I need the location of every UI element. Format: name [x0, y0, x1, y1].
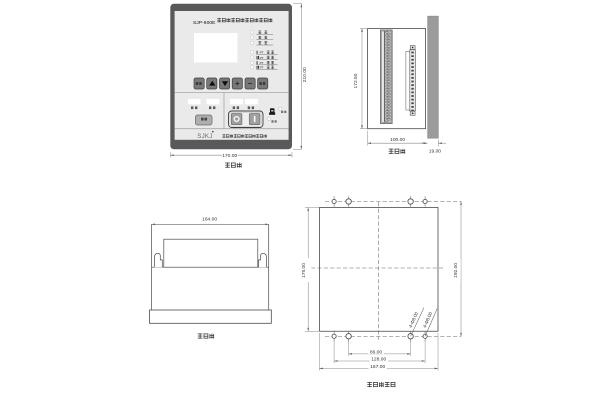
- svg-text:192.00: 192.00: [453, 263, 459, 278]
- svg-text:19.00: 19.00: [429, 148, 442, 154]
- svg-text:PT: PT: [260, 66, 264, 70]
- svg-text:164.00: 164.00: [202, 217, 217, 223]
- svg-text:172.50: 172.50: [353, 73, 359, 88]
- svg-text:170.00: 170.00: [222, 153, 237, 159]
- svg-text:PT: PT: [260, 56, 264, 60]
- svg-text:100.00: 100.00: [390, 137, 405, 143]
- svg-text:175.00: 175.00: [301, 263, 307, 278]
- svg-text:SJP-600E: SJP-600E: [193, 20, 216, 26]
- svg-text:210.00: 210.00: [302, 67, 308, 82]
- svg-text:86.00: 86.00: [370, 349, 383, 355]
- svg-text:PT: PT: [260, 61, 264, 65]
- svg-text:167.00: 167.00: [370, 364, 385, 370]
- svg-text:SJKJ: SJKJ: [197, 133, 212, 140]
- svg-text:PT: PT: [260, 51, 264, 55]
- svg-text:128.00: 128.00: [371, 357, 386, 363]
